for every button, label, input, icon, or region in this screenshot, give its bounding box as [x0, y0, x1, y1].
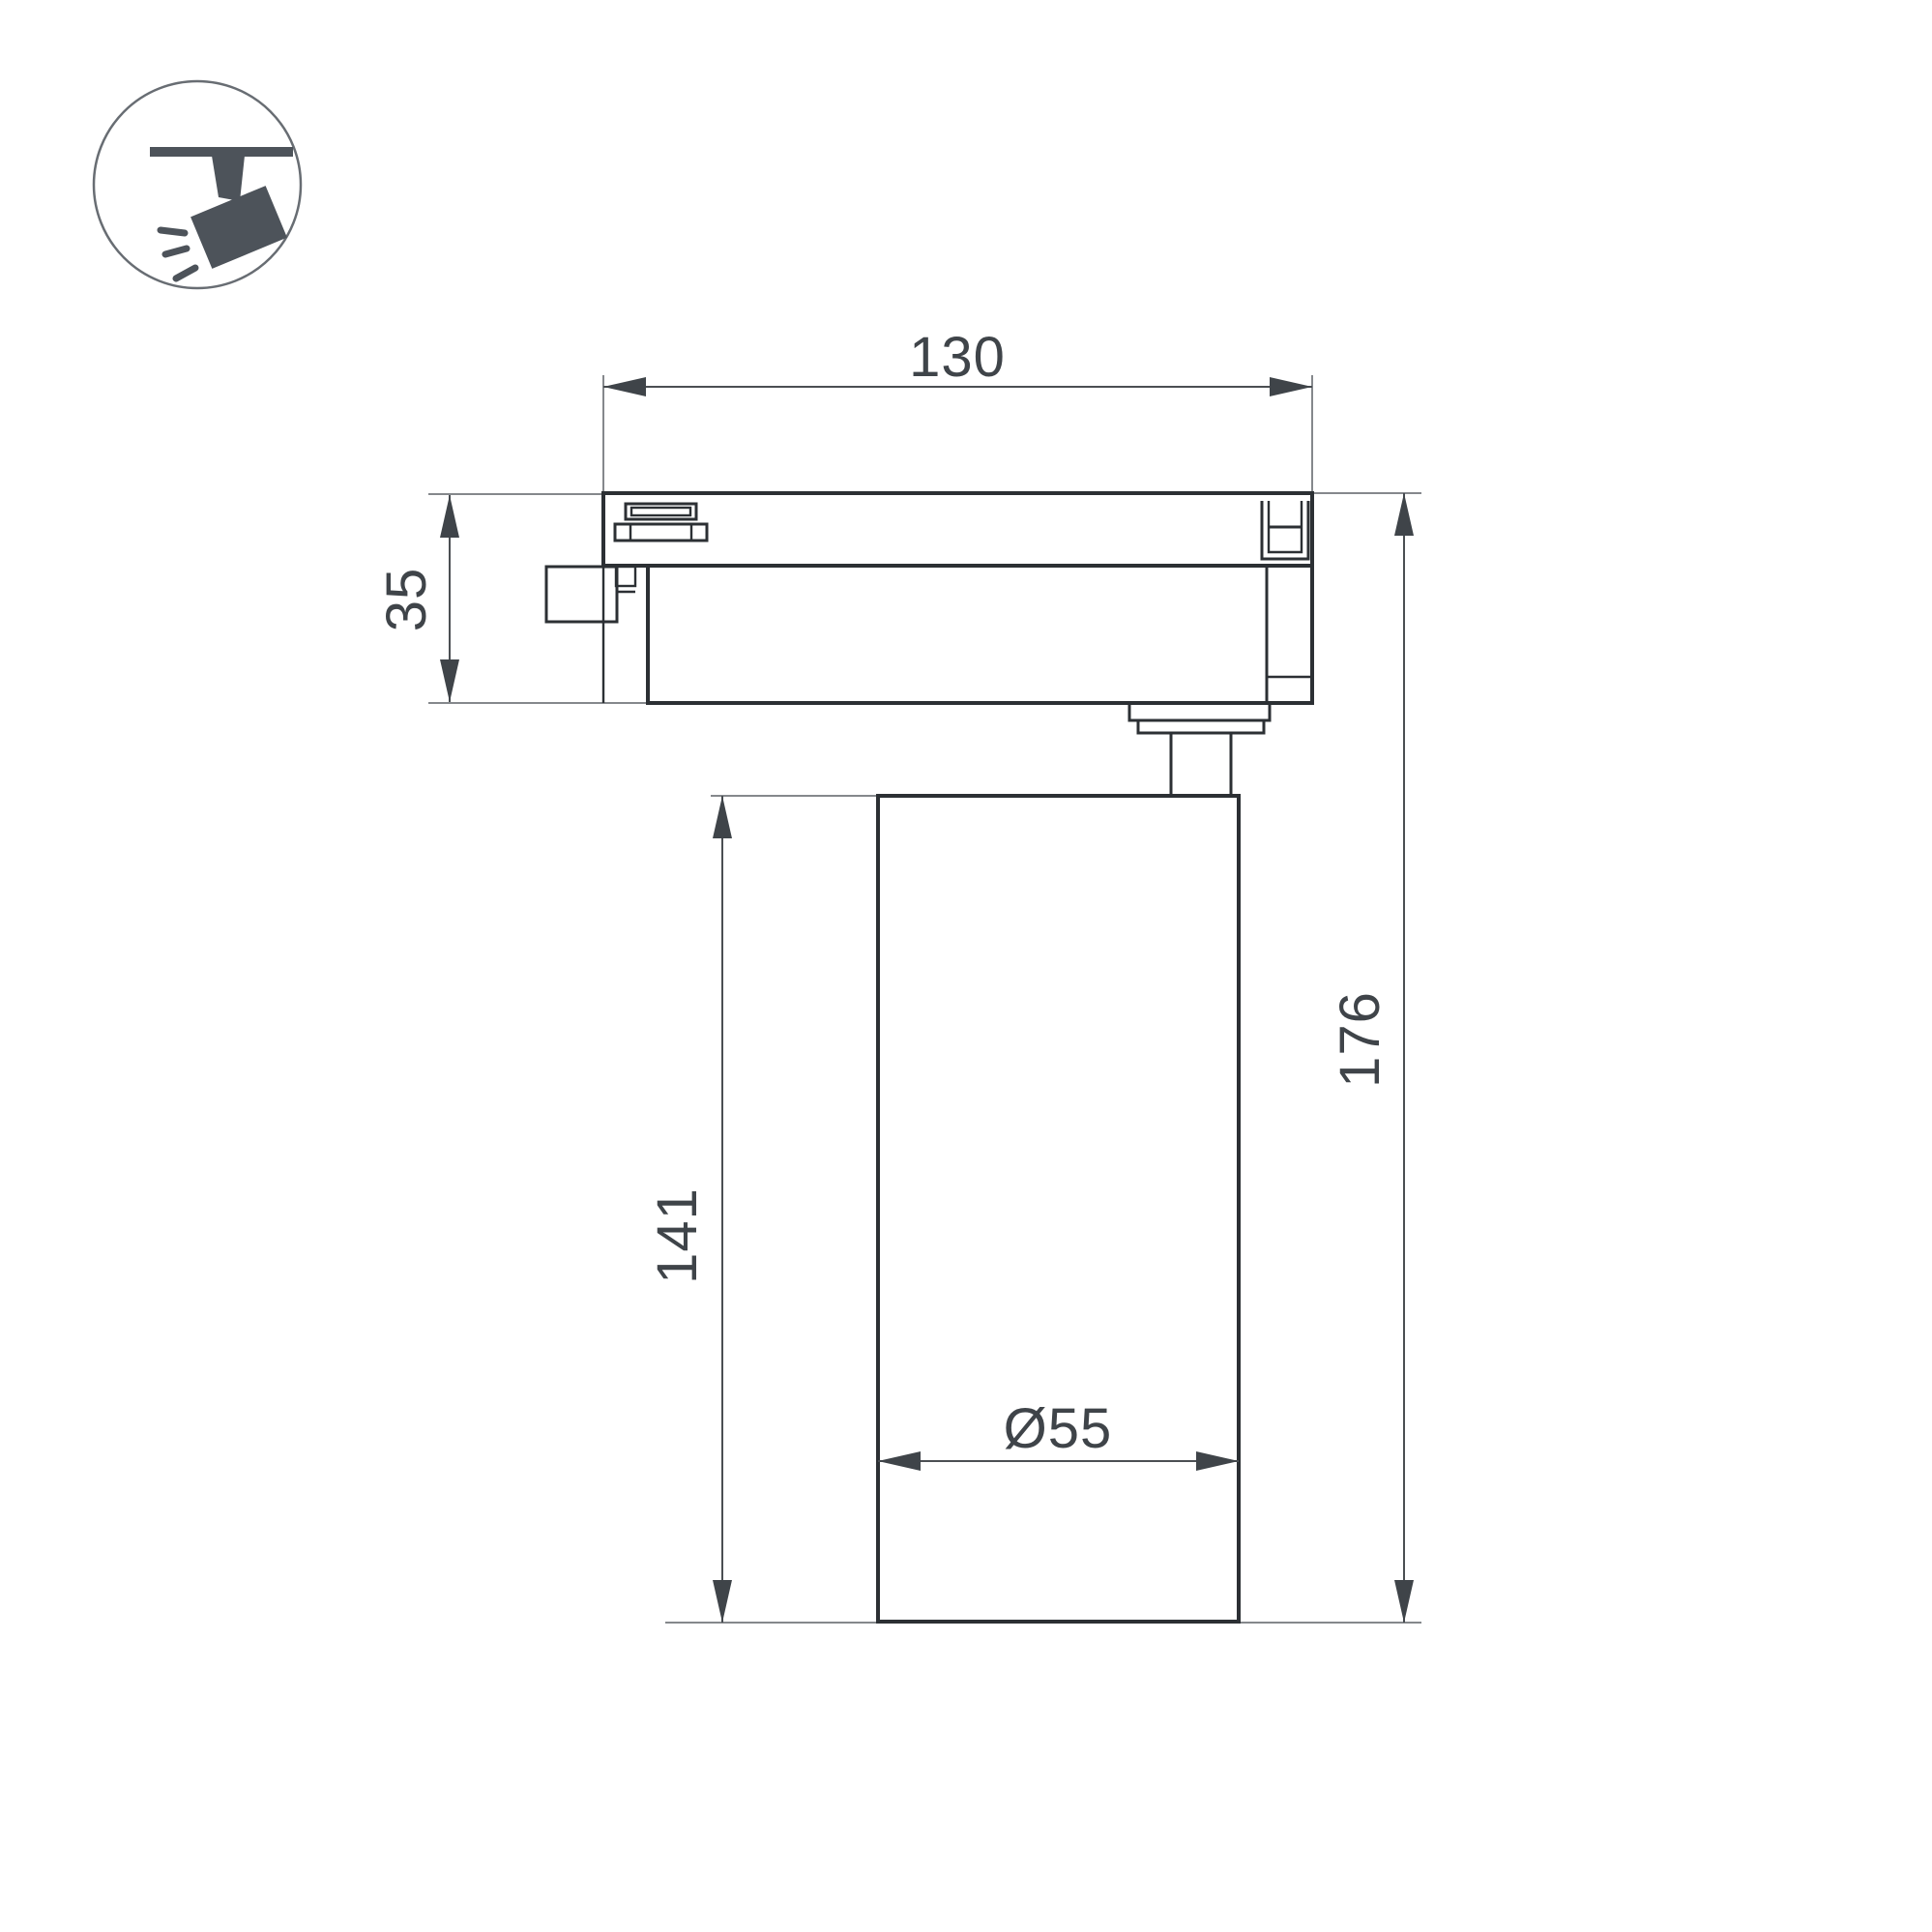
- arrow-130-left: [603, 377, 646, 396]
- dimension-130: 130: [603, 326, 1312, 396]
- adapter-band: [603, 493, 1312, 566]
- arrow-35-top: [440, 495, 459, 538]
- arrow-55-right: [1196, 1451, 1239, 1471]
- label-track-width: 130: [909, 326, 1006, 389]
- arrow-130-right: [1270, 377, 1312, 396]
- track-light-icon: [94, 81, 301, 288]
- arrow-55-left: [878, 1451, 921, 1471]
- arrow-141-top: [713, 796, 732, 838]
- arrow-35-bottom: [440, 659, 459, 702]
- technical-drawing-canvas: 130 35 141 176 Ø55: [0, 0, 1932, 1932]
- contact-slot-1: [626, 504, 696, 519]
- adapter-housing: [648, 566, 1312, 703]
- mount-flange-lower: [1138, 720, 1264, 733]
- extension-lines: [428, 375, 1421, 1623]
- arrow-176-bottom: [1394, 1580, 1414, 1623]
- label-track-height: 35: [375, 568, 438, 632]
- latch-detail: [616, 567, 635, 592]
- icon-light-rays: [161, 230, 195, 278]
- icon-circle: [94, 81, 301, 288]
- contact-slot-2: [615, 524, 707, 541]
- right-clip: [1262, 501, 1308, 559]
- dimension-176: 176: [1329, 493, 1414, 1623]
- label-body-diameter: Ø55: [1004, 1397, 1113, 1460]
- mount-flange-upper: [1129, 703, 1270, 720]
- arrow-141-bottom: [713, 1580, 732, 1623]
- dimension-141: 141: [646, 796, 732, 1623]
- dimension-diameter-55: Ø55: [878, 1397, 1239, 1471]
- icon-stem: [212, 156, 245, 201]
- lock-lever: [546, 567, 617, 622]
- icon-track-bar: [150, 147, 293, 157]
- label-body-height: 141: [646, 1187, 709, 1284]
- arrow-176-top: [1394, 493, 1414, 536]
- label-total-height: 176: [1329, 991, 1391, 1088]
- dimension-35: 35: [375, 495, 459, 702]
- lamp-body: [878, 796, 1239, 1622]
